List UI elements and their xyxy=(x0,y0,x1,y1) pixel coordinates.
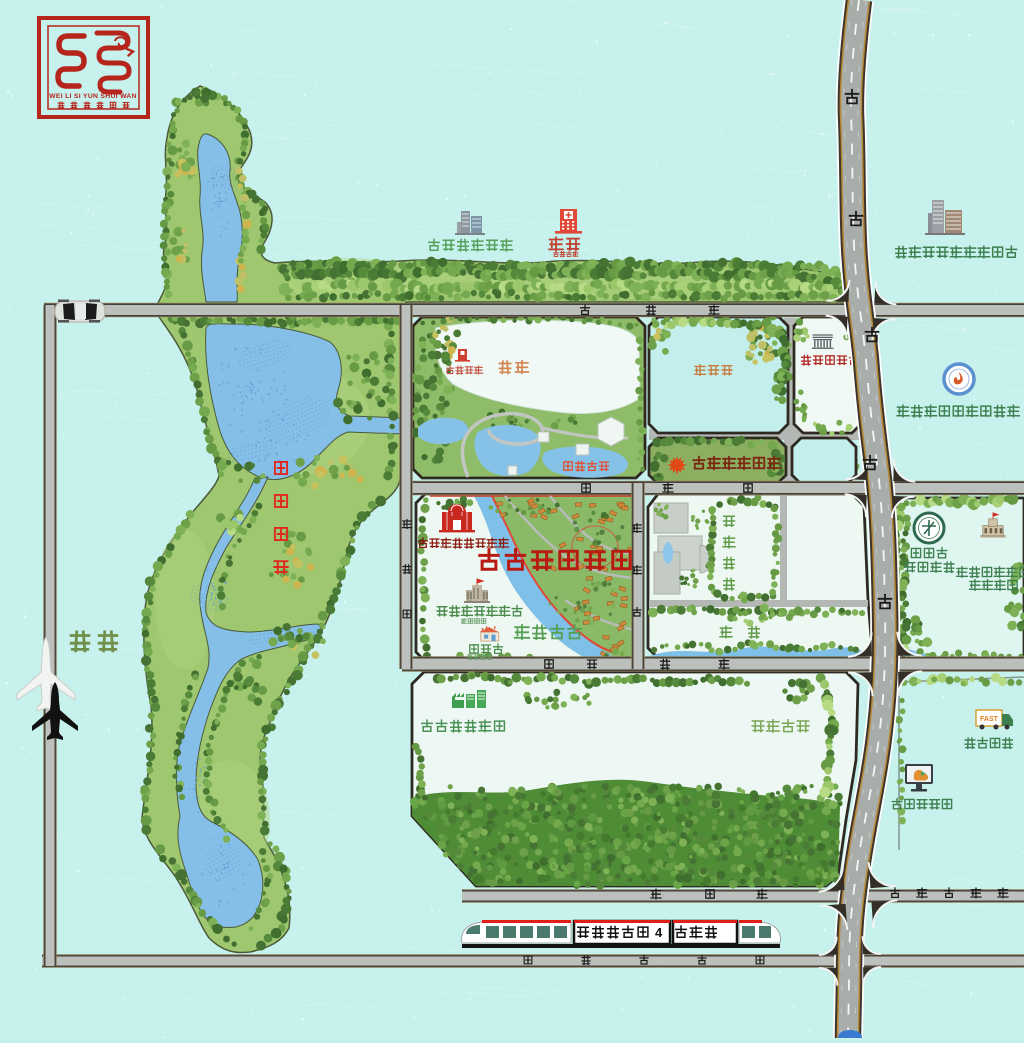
svg-text:FAST: FAST xyxy=(980,716,999,723)
svg-text:WEI LI SI YUN SHUI WAN: WEI LI SI YUN SHUI WAN xyxy=(49,93,137,100)
svg-text:4: 4 xyxy=(655,925,663,940)
